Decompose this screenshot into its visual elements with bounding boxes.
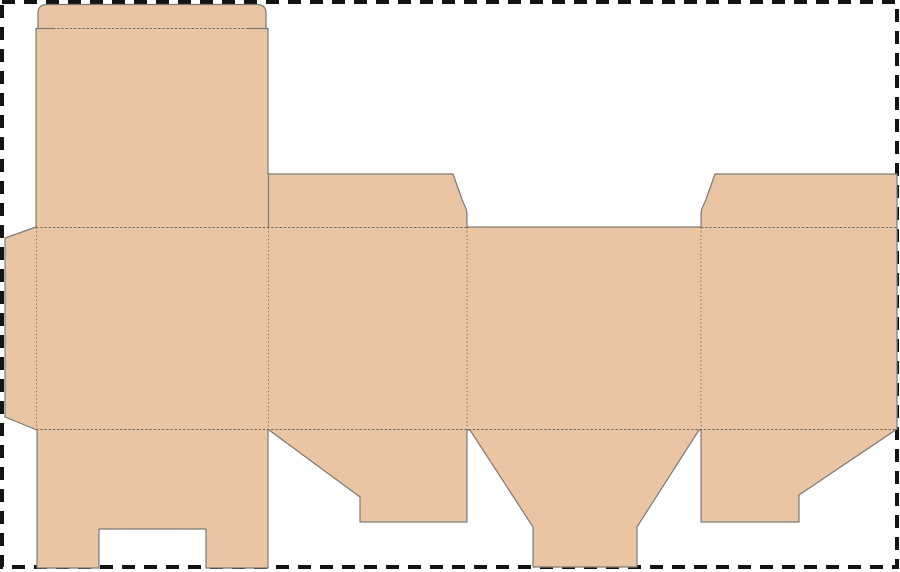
dieline-canvas: [0, 0, 900, 572]
packaging-dieline-diagram: [0, 0, 900, 572]
carton-blank-outline: [5, 5, 897, 569]
